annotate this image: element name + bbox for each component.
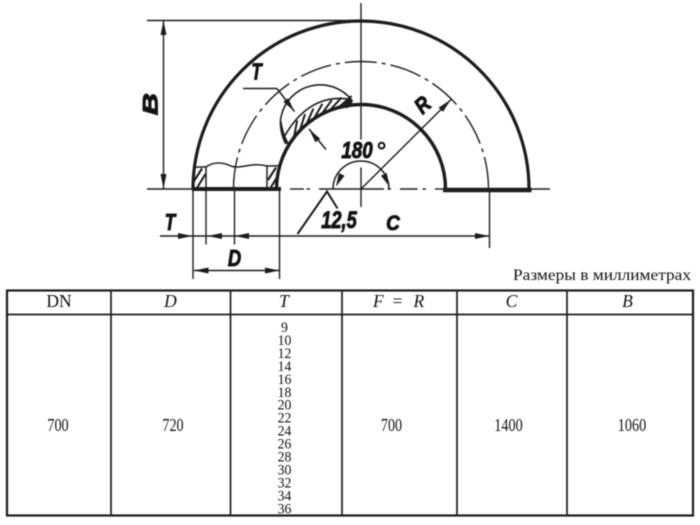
- svg-text:F: F: [372, 291, 384, 311]
- svg-text:=: =: [393, 291, 403, 311]
- svg-text:R: R: [410, 92, 436, 119]
- svg-text:12,5: 12,5: [321, 207, 357, 234]
- svg-text:Размеры в миллиметрах: Размеры в миллиметрах: [513, 267, 691, 284]
- svg-text:D: D: [163, 291, 177, 311]
- svg-text:720: 720: [162, 415, 183, 435]
- svg-text:C: C: [386, 212, 400, 235]
- svg-text:B: B: [622, 291, 633, 311]
- svg-text:D: D: [228, 246, 241, 271]
- svg-text:T: T: [165, 211, 177, 236]
- svg-text:700: 700: [381, 415, 402, 435]
- svg-text:DN: DN: [46, 291, 72, 311]
- svg-text:C: C: [506, 291, 518, 311]
- svg-text:700: 700: [47, 415, 68, 435]
- svg-text:1400: 1400: [494, 415, 522, 435]
- svg-text:180: 180: [341, 137, 372, 164]
- svg-text:T: T: [251, 59, 263, 85]
- svg-text:B: B: [138, 93, 162, 115]
- svg-text:T: T: [279, 291, 290, 311]
- svg-text:1060: 1060: [618, 415, 646, 435]
- svg-text:R: R: [412, 291, 424, 311]
- svg-text:36: 36: [278, 501, 292, 517]
